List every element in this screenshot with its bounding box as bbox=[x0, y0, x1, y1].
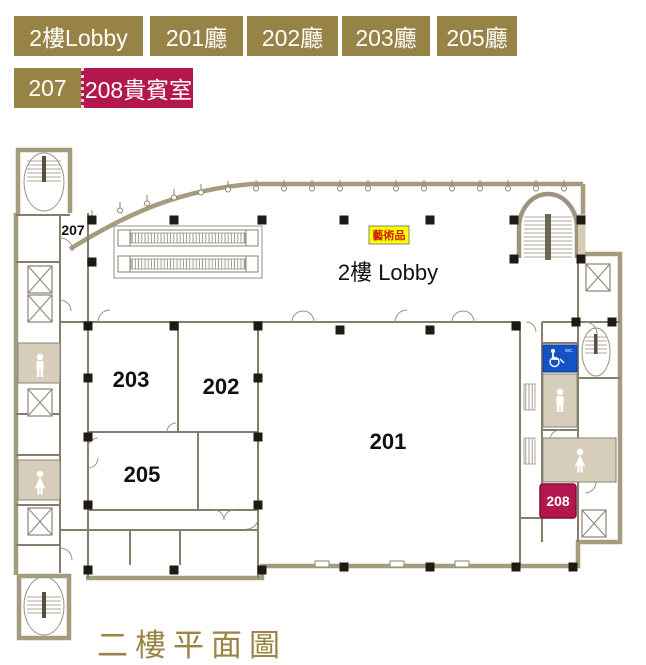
floor-plan-drawing: WC 藝術品 208 203 202 205 201 207 2樓 Lobby … bbox=[0, 0, 646, 665]
grand-staircase bbox=[519, 194, 585, 260]
page-title: 二樓平面圖 bbox=[97, 628, 287, 663]
lobby-label: 2樓 Lobby bbox=[338, 260, 438, 285]
floor-plan-page: 2樓Lobby 201廳 202廳 203廳 205廳 207 208貴賓室 bbox=[0, 0, 646, 665]
room-205-label: 205 bbox=[124, 462, 161, 487]
restroom-right-female bbox=[543, 438, 616, 482]
room-203-label: 203 bbox=[113, 367, 150, 392]
accessible-restroom: WC bbox=[543, 345, 577, 372]
stairwell-top-left bbox=[24, 153, 64, 211]
room-202-label: 202 bbox=[203, 374, 240, 399]
elevators bbox=[28, 264, 610, 537]
stairwell-right bbox=[582, 328, 610, 376]
wc-label: WC bbox=[565, 348, 573, 353]
restroom-right-male bbox=[543, 374, 577, 427]
room-201-label: 201 bbox=[370, 429, 407, 454]
restroom-left-female bbox=[18, 460, 60, 500]
room-208-badge: 208 bbox=[540, 484, 576, 518]
stairwell-bottom-left bbox=[24, 577, 64, 635]
escalators bbox=[114, 226, 262, 278]
doors bbox=[60, 238, 597, 560]
restroom-left-male bbox=[18, 343, 60, 383]
artwork-badge: 藝術品 bbox=[369, 226, 409, 244]
room-207-label: 207 bbox=[61, 222, 85, 238]
artwork-label: 藝術品 bbox=[373, 228, 406, 242]
corridor-windows bbox=[315, 384, 535, 567]
room-208-label: 208 bbox=[546, 493, 570, 509]
